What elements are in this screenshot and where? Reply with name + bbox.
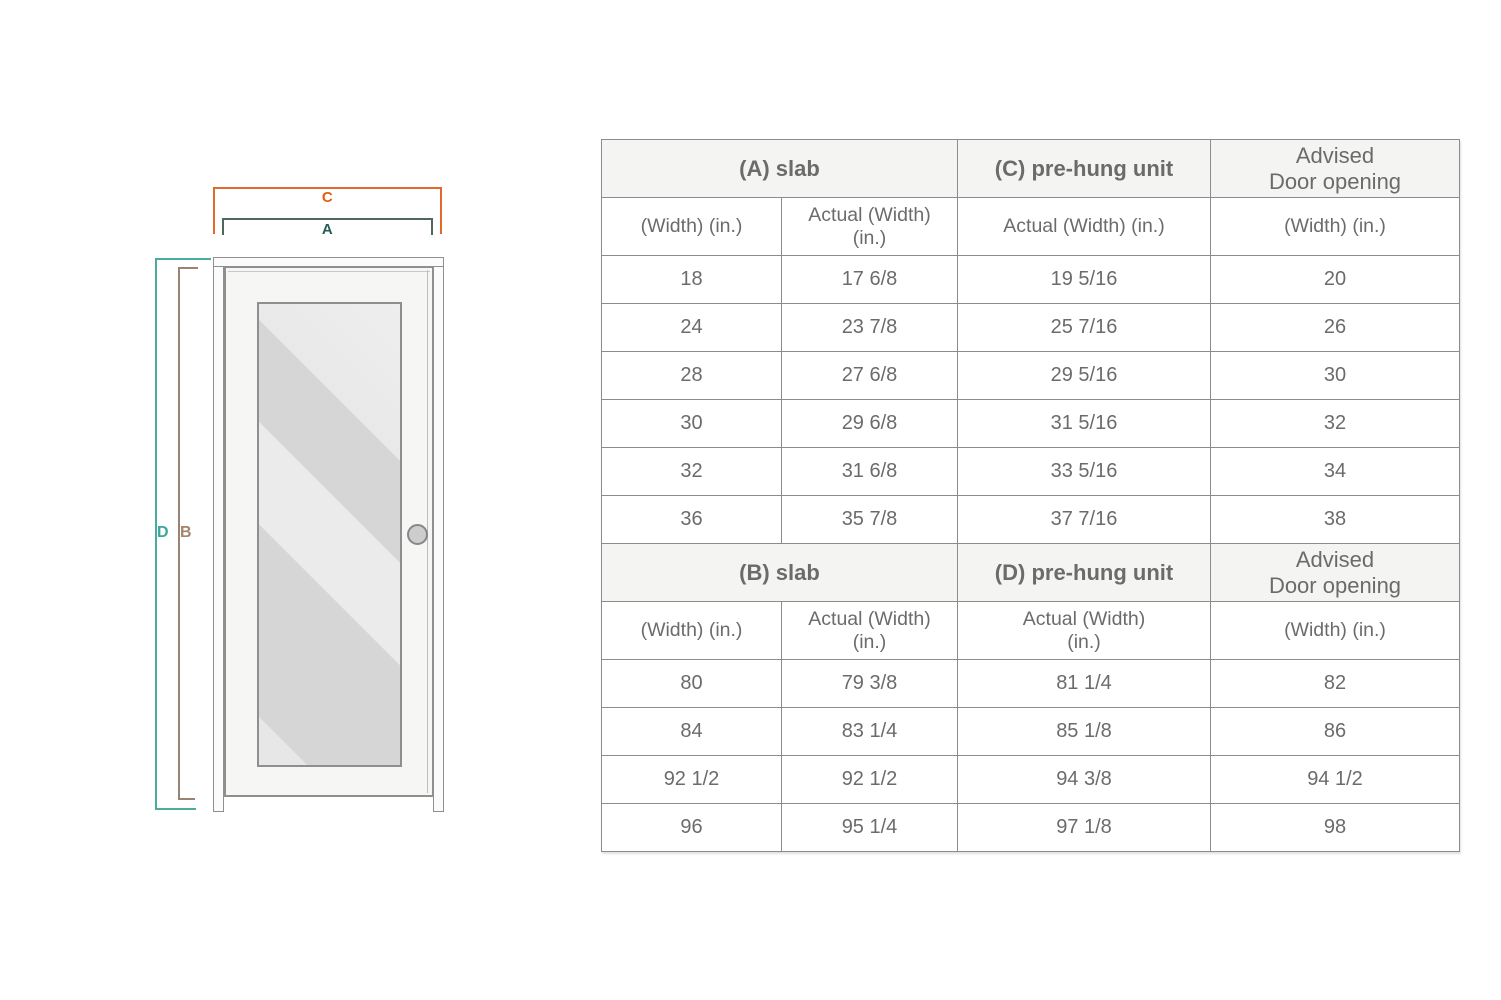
table-cell: 96 (602, 804, 782, 852)
table-row: 18 17 6/8 19 5/16 20 (602, 256, 1460, 304)
dimension-bracket-d-top-tick (155, 258, 211, 260)
table-cell: 94 1/2 (1211, 756, 1460, 804)
table-cell: 19 5/16 (958, 256, 1211, 304)
dimension-label-c: C (213, 189, 442, 206)
table-row: 80 79 3/8 81 1/4 82 (602, 660, 1460, 708)
col-header-actual-line2: (in.) (853, 227, 887, 249)
col-header-actual-line2: (in.) (853, 631, 887, 653)
dimension-label-a: A (222, 221, 433, 238)
door-glass-panel (257, 302, 402, 767)
group-header-a-slab: (A) slab (602, 140, 958, 198)
table-cell: 33 5/16 (958, 448, 1211, 496)
group-header-advised-door-opening-2: Advised Door opening (1211, 544, 1460, 602)
door-frame-left-jamb (213, 257, 224, 812)
table-cell: 80 (602, 660, 782, 708)
dimension-label-b: B (180, 524, 192, 542)
group-header-b-slab: (B) slab (602, 544, 958, 602)
table-cell: 84 (602, 708, 782, 756)
col-header-advised-width: (Width) (in.) (1211, 602, 1460, 660)
table-cell: 34 (1211, 448, 1460, 496)
door-size-table: (A) slab (C) pre-hung unit Advised Door … (601, 139, 1460, 852)
col-header-actual-width-prehung: Actual (Width) (in.) (958, 198, 1211, 256)
col-header-actual-width: Actual (Width) (in.) (782, 198, 958, 256)
col-header-actual-line1: Actual (Width) (808, 608, 930, 630)
col-header-width: (Width) (in.) (602, 602, 782, 660)
advised-line2: Door opening (1269, 169, 1401, 194)
table-cell: 26 (1211, 304, 1460, 352)
table-cell: 98 (1211, 804, 1460, 852)
table-cell: 92 1/2 (782, 756, 958, 804)
col-header-actual-width-prehung: Actual (Width) (in.) (958, 602, 1211, 660)
col-header-actual-prehung-line1: Actual (Width) (1023, 608, 1145, 630)
table-cell: 31 5/16 (958, 400, 1211, 448)
dimension-bracket-b-top-tick (178, 267, 198, 269)
table-row: 24 23 7/8 25 7/16 26 (602, 304, 1460, 352)
table-cell: 32 (602, 448, 782, 496)
table-cell: 23 7/8 (782, 304, 958, 352)
column-header-row-2: (Width) (in.) Actual (Width) (in.) Actua… (602, 602, 1460, 660)
column-header-row-1: (Width) (in.) Actual (Width) (in.) Actua… (602, 198, 1460, 256)
table-cell: 30 (602, 400, 782, 448)
advised-line1: Advised (1296, 143, 1374, 168)
col-header-actual-line1: Actual (Width) (808, 204, 930, 226)
table-cell: 29 6/8 (782, 400, 958, 448)
table-cell: 94 3/8 (958, 756, 1211, 804)
col-header-width: (Width) (in.) (602, 198, 782, 256)
group-header-row-1: (A) slab (C) pre-hung unit Advised Door … (602, 140, 1460, 198)
dimension-label-d: D (157, 524, 169, 542)
table-row: 28 27 6/8 29 5/16 30 (602, 352, 1460, 400)
table-cell: 18 (602, 256, 782, 304)
group-header-row-2: (B) slab (D) pre-hung unit Advised Door … (602, 544, 1460, 602)
table-cell: 32 (1211, 400, 1460, 448)
table-row: 84 83 1/4 85 1/8 86 (602, 708, 1460, 756)
dimension-bracket-b-bottom-tick (178, 798, 195, 800)
col-header-advised-width: (Width) (in.) (1211, 198, 1460, 256)
group-header-d-prehung-unit: (D) pre-hung unit (958, 544, 1211, 602)
table-cell: 31 6/8 (782, 448, 958, 496)
table-cell: 35 7/8 (782, 496, 958, 544)
table-cell: 30 (1211, 352, 1460, 400)
table-cell: 20 (1211, 256, 1460, 304)
table-cell: 83 1/4 (782, 708, 958, 756)
table-row: 30 29 6/8 31 5/16 32 (602, 400, 1460, 448)
table-cell: 92 1/2 (602, 756, 782, 804)
door-frame-right-jamb (433, 257, 444, 812)
table-cell: 86 (1211, 708, 1460, 756)
group-header-advised-door-opening: Advised Door opening (1211, 140, 1460, 198)
door-diagram: C A D B (0, 0, 600, 1000)
dimension-bracket-d-bottom-tick (155, 808, 196, 810)
door-knob (407, 524, 428, 545)
table-cell: 85 1/8 (958, 708, 1211, 756)
table-cell: 97 1/8 (958, 804, 1211, 852)
table-cell: 17 6/8 (782, 256, 958, 304)
table-cell: 36 (602, 496, 782, 544)
table-cell: 24 (602, 304, 782, 352)
table-cell: 81 1/4 (958, 660, 1211, 708)
table-row: 32 31 6/8 33 5/16 34 (602, 448, 1460, 496)
table-cell: 28 (602, 352, 782, 400)
table-cell: 79 3/8 (782, 660, 958, 708)
table-cell: 29 5/16 (958, 352, 1211, 400)
table-row: 36 35 7/8 37 7/16 38 (602, 496, 1460, 544)
col-header-actual-prehung-line2: (in.) (1067, 631, 1101, 653)
col-header-actual-width: Actual (Width) (in.) (782, 602, 958, 660)
table-cell: 38 (1211, 496, 1460, 544)
table-cell: 37 7/16 (958, 496, 1211, 544)
size-table-container: (A) slab (C) pre-hung unit Advised Door … (601, 139, 1460, 852)
advised-line1: Advised (1296, 547, 1374, 572)
table-cell: 25 7/16 (958, 304, 1211, 352)
table-row: 96 95 1/4 97 1/8 98 (602, 804, 1460, 852)
table-cell: 27 6/8 (782, 352, 958, 400)
table-cell: 95 1/4 (782, 804, 958, 852)
advised-line2: Door opening (1269, 573, 1401, 598)
table-cell: 82 (1211, 660, 1460, 708)
table-row: 92 1/2 92 1/2 94 3/8 94 1/2 (602, 756, 1460, 804)
group-header-c-prehung-unit: (C) pre-hung unit (958, 140, 1211, 198)
